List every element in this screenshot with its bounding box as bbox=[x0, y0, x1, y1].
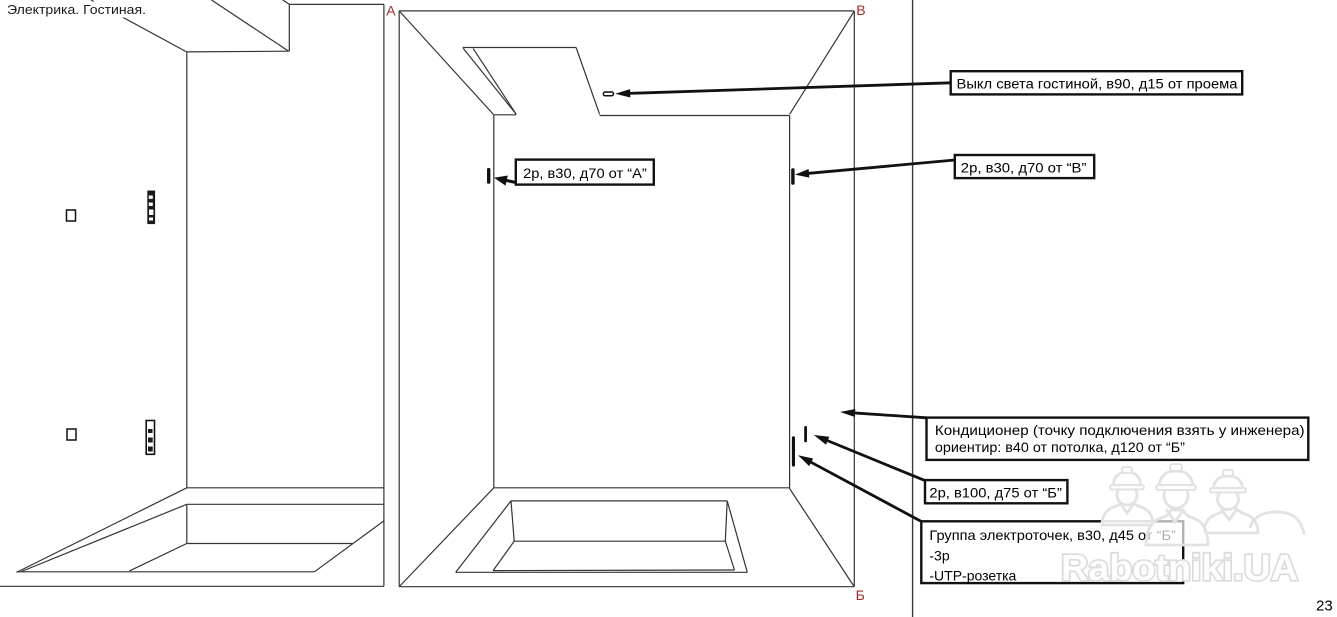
svg-text:-3р: -3р bbox=[929, 547, 949, 563]
svg-text:Группа электроточек, в30, д45: Группа электроточек, в30, д45 от “Б” bbox=[929, 527, 1176, 543]
svg-text:23: 23 bbox=[1316, 597, 1333, 614]
svg-text:2р, в30, д70 от “В”: 2р, в30, д70 от “В” bbox=[961, 160, 1087, 176]
svg-text:2р, в30, д70 от “А”: 2р, в30, д70 от “А” bbox=[523, 165, 647, 181]
svg-text:Б: Б bbox=[856, 587, 865, 603]
svg-text:В: В bbox=[856, 2, 865, 18]
svg-text:А: А bbox=[386, 2, 396, 18]
svg-text:2р, в100, д75 от “Б”: 2р, в100, д75 от “Б” bbox=[929, 484, 1062, 500]
svg-text:Электрика. Гостиная.: Электрика. Гостиная. bbox=[7, 3, 146, 17]
svg-text:ориентир: в40 от потолка, д120: ориентир: в40 от потолка, д120 от “Б” bbox=[935, 439, 1185, 455]
svg-text:Выкл света гостиной, в90, д15: Выкл света гостиной, в90, д15 от проема bbox=[957, 77, 1239, 92]
svg-text:-UTP-розетка: -UTP-розетка bbox=[929, 568, 1016, 584]
svg-text:Rabotniki.UA: Rabotniki.UA bbox=[1061, 547, 1298, 588]
svg-text:Кондиционер (точку подключения: Кондиционер (точку подключения взять у и… bbox=[935, 422, 1305, 438]
